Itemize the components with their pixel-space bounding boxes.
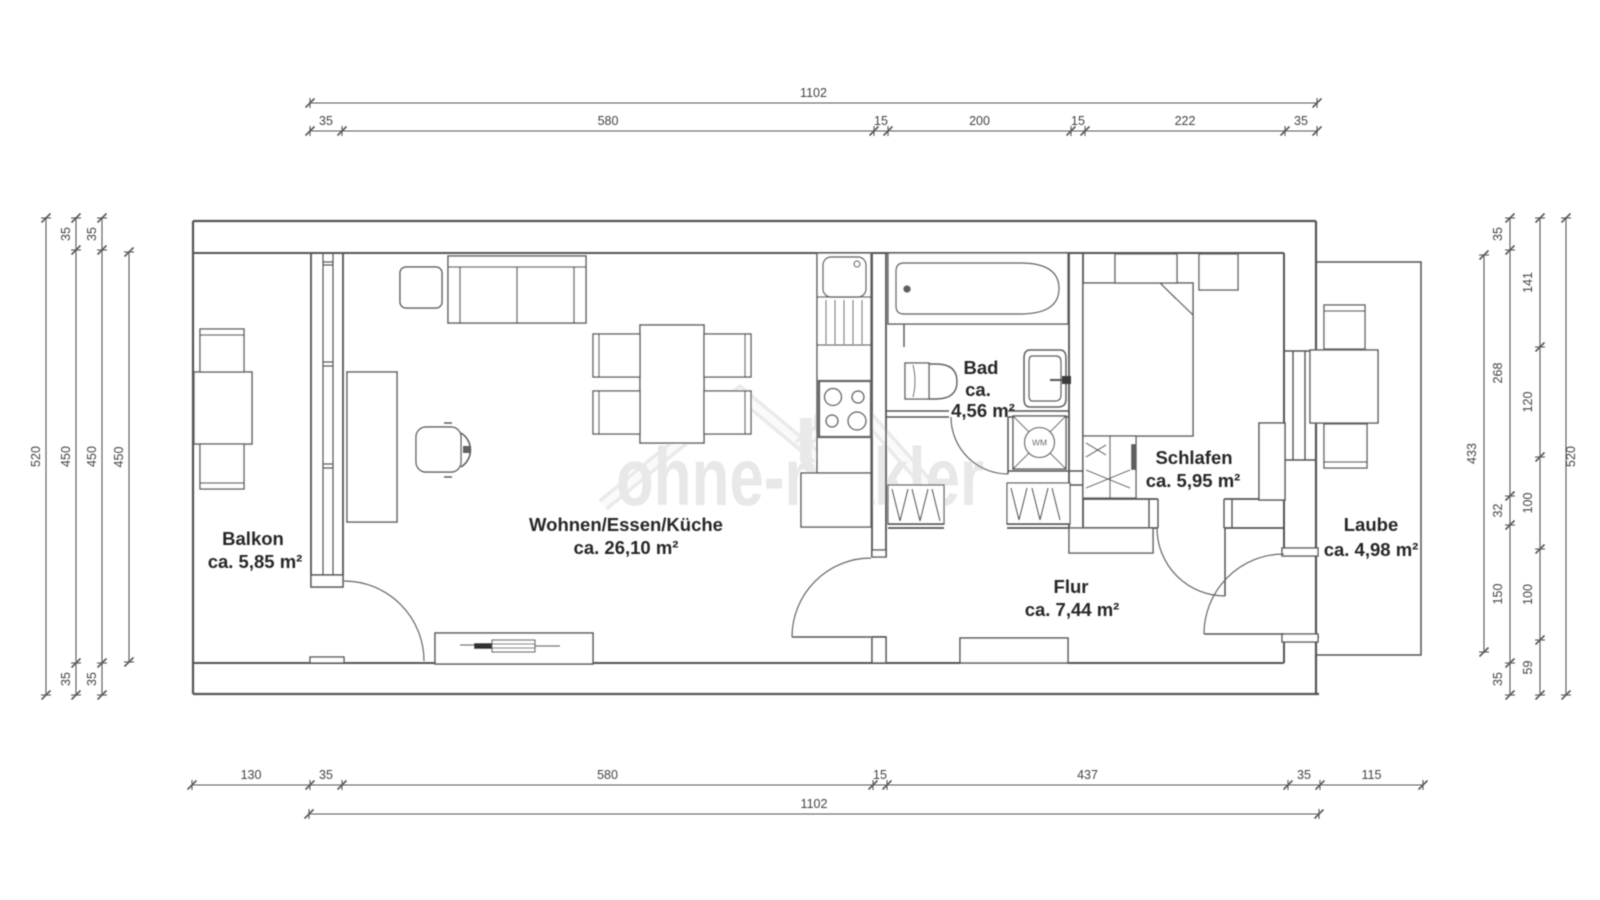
svg-text:15: 15	[873, 768, 887, 782]
svg-text:15: 15	[1071, 114, 1085, 128]
svg-text:580: 580	[598, 114, 619, 128]
svg-text:Balkon: Balkon	[222, 528, 284, 549]
svg-text:59: 59	[1521, 661, 1535, 675]
svg-text:ca. 4,98 m²: ca. 4,98 m²	[1324, 539, 1419, 560]
svg-text:Flur: Flur	[1054, 576, 1089, 597]
svg-text:35: 35	[319, 114, 333, 128]
svg-text:35: 35	[59, 672, 73, 686]
svg-text:35: 35	[85, 227, 99, 241]
svg-text:35: 35	[319, 768, 333, 782]
svg-text:520: 520	[29, 446, 43, 467]
svg-text:200: 200	[969, 114, 990, 128]
svg-text:ca. 5,85 m²: ca. 5,85 m²	[208, 551, 303, 572]
svg-text:35: 35	[85, 672, 99, 686]
svg-text:1102: 1102	[801, 797, 828, 811]
svg-text:1102: 1102	[800, 86, 827, 100]
svg-text:130: 130	[241, 768, 262, 782]
svg-text:450: 450	[85, 446, 99, 467]
svg-text:450: 450	[59, 446, 73, 467]
svg-text:Laube: Laube	[1344, 514, 1398, 535]
svg-text:ca. 5,95 m²: ca. 5,95 m²	[1146, 470, 1241, 491]
svg-text:100: 100	[1521, 584, 1535, 605]
svg-text:WM: WM	[1032, 438, 1047, 448]
svg-text:35: 35	[1297, 768, 1311, 782]
svg-text:ca.: ca.	[965, 379, 991, 400]
svg-text:222: 222	[1175, 114, 1196, 128]
svg-text:141: 141	[1521, 272, 1535, 293]
svg-text:ca. 7,44 m²: ca. 7,44 m²	[1025, 599, 1120, 620]
svg-text:35: 35	[1491, 672, 1505, 686]
svg-text:ca. 26,10 m²: ca. 26,10 m²	[574, 537, 679, 558]
svg-text:Wohnen/Essen/Küche: Wohnen/Essen/Küche	[529, 514, 723, 535]
svg-text:120: 120	[1521, 392, 1535, 413]
svg-text:Bad: Bad	[964, 357, 999, 378]
svg-text:150: 150	[1491, 584, 1505, 605]
svg-text:35: 35	[1294, 114, 1308, 128]
svg-text:32: 32	[1491, 504, 1505, 518]
svg-text:4,56 m²: 4,56 m²	[951, 400, 1015, 421]
svg-text:115: 115	[1362, 768, 1382, 782]
svg-text:433: 433	[1465, 443, 1479, 464]
svg-text:268: 268	[1491, 363, 1505, 384]
svg-text:520: 520	[1564, 446, 1578, 467]
svg-text:450: 450	[112, 447, 126, 468]
svg-text:35: 35	[1491, 227, 1505, 241]
svg-text:580: 580	[597, 768, 618, 782]
svg-text:Schlafen: Schlafen	[1155, 447, 1232, 468]
svg-text:35: 35	[59, 227, 73, 241]
svg-text:15: 15	[874, 114, 888, 128]
svg-text:437: 437	[1077, 768, 1098, 782]
svg-text:100: 100	[1521, 493, 1535, 514]
